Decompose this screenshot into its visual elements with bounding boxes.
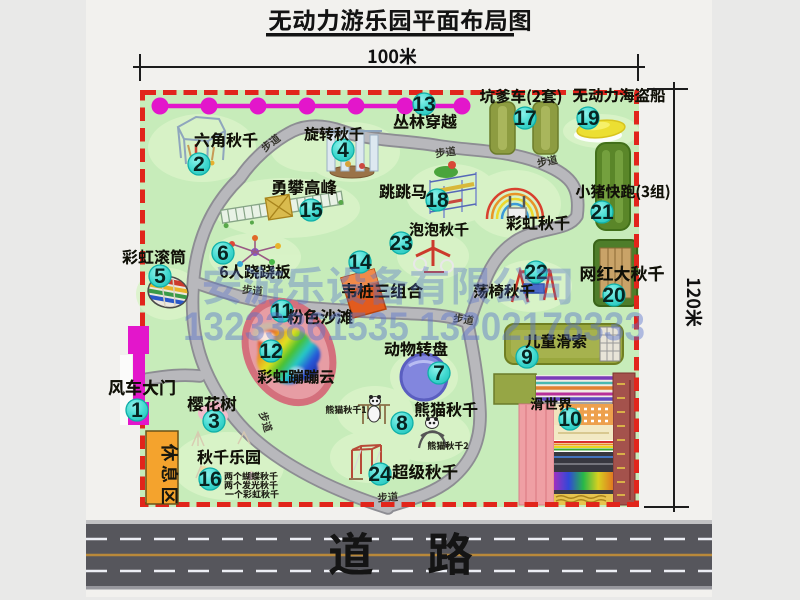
- svg-text:13: 13: [412, 93, 435, 116]
- svg-text:4: 4: [337, 139, 349, 162]
- svg-text:1: 1: [131, 399, 143, 422]
- svg-text:5: 5: [154, 265, 166, 288]
- svg-text:10: 10: [558, 408, 581, 431]
- svg-text:7: 7: [433, 362, 445, 385]
- svg-text:20: 20: [602, 284, 625, 307]
- svg-text:3: 3: [208, 410, 220, 433]
- svg-text:2: 2: [193, 153, 205, 176]
- svg-text:8: 8: [396, 412, 408, 435]
- svg-text:13233861535 13202178333: 13233861535 13202178333: [183, 305, 645, 349]
- svg-text:9: 9: [521, 346, 533, 369]
- svg-text:21: 21: [590, 201, 614, 224]
- svg-text:19: 19: [576, 107, 599, 130]
- svg-text:18: 18: [425, 189, 449, 212]
- svg-text:6: 6: [217, 242, 229, 265]
- svg-text:15: 15: [299, 199, 323, 222]
- svg-text:24: 24: [368, 463, 392, 486]
- svg-text:23: 23: [389, 232, 412, 255]
- svg-text:17: 17: [513, 107, 536, 130]
- svg-text:16: 16: [198, 468, 221, 491]
